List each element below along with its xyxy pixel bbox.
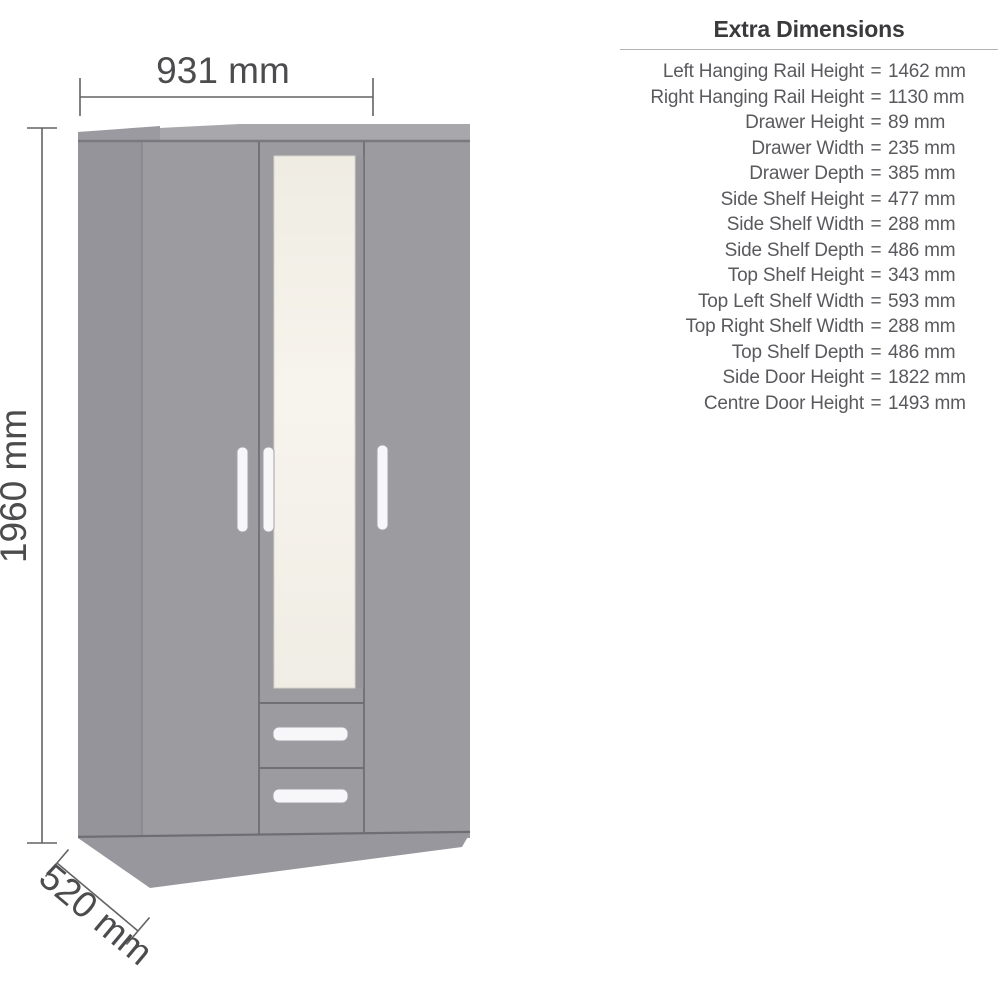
equals-sign: = — [864, 136, 888, 162]
dimension-value: 1493 mm — [888, 391, 998, 417]
dimension-label: Side Shelf Width — [620, 212, 864, 238]
dimension-value: 486 mm — [888, 340, 998, 366]
equals-sign: = — [864, 314, 888, 340]
equals-sign: = — [864, 212, 888, 238]
bottom-drawer-handle — [273, 789, 348, 803]
dimension-label: Top Shelf Height — [620, 263, 864, 289]
equals-sign: = — [864, 161, 888, 187]
dimension-value: 288 mm — [888, 212, 998, 238]
wardrobe-diagram: 931 mm 1960 mm 520 mm — [0, 0, 620, 1000]
dimension-label: Right Hanging Rail Height — [620, 85, 864, 111]
wardrobe-plinth — [78, 833, 470, 888]
width-dimension-label: 931 mm — [156, 50, 290, 91]
mirror — [274, 156, 355, 688]
dimension-row: Side Shelf Depth = 486 mm — [620, 238, 998, 264]
dimension-row: Top Left Shelf Width = 593 mm — [620, 289, 998, 315]
equals-sign: = — [864, 238, 888, 264]
equals-sign: = — [864, 365, 888, 391]
dimension-row: Drawer Width = 235 mm — [620, 136, 998, 162]
extra-dimensions-title: Extra Dimensions — [620, 16, 998, 43]
mirror-side-shadow — [355, 156, 364, 688]
wardrobe-illustration — [78, 124, 470, 888]
title-underline — [620, 49, 998, 50]
extra-dimensions-list: Left Hanging Rail Height = 1462 mm Right… — [620, 59, 998, 416]
dimension-label: Drawer Height — [620, 110, 864, 136]
equals-sign: = — [864, 187, 888, 213]
dimension-value: 1130 mm — [888, 85, 998, 111]
dimension-row: Centre Door Height = 1493 mm — [620, 391, 998, 417]
dimension-row: Top Right Shelf Width = 288 mm — [620, 314, 998, 340]
dimension-label: Side Shelf Depth — [620, 238, 864, 264]
dimension-row: Side Door Height = 1822 mm — [620, 365, 998, 391]
dimension-row: Top Shelf Height = 343 mm — [620, 263, 998, 289]
dimension-row: Side Shelf Width = 288 mm — [620, 212, 998, 238]
dimension-row: Left Hanging Rail Height = 1462 mm — [620, 59, 998, 85]
right-door-handle — [377, 445, 388, 530]
centre-door-handle — [263, 447, 274, 532]
top-drawer-handle — [273, 727, 348, 741]
dimension-value: 1462 mm — [888, 59, 998, 85]
equals-sign: = — [864, 110, 888, 136]
page: 931 mm 1960 mm 520 mm Extra Dimensions L… — [0, 0, 1000, 1000]
equals-sign: = — [864, 85, 888, 111]
dimension-row: Top Shelf Depth = 486 mm — [620, 340, 998, 366]
height-dimension-label: 1960 mm — [0, 409, 34, 563]
dimension-row: Drawer Depth = 385 mm — [620, 161, 998, 187]
equals-sign: = — [864, 391, 888, 417]
dimension-label: Centre Door Height — [620, 391, 864, 417]
equals-sign: = — [864, 263, 888, 289]
left-door-handle — [237, 447, 248, 532]
dimension-label: Top Left Shelf Width — [620, 289, 864, 315]
dimension-row: Right Hanging Rail Height = 1130 mm — [620, 85, 998, 111]
dimension-value: 477 mm — [888, 187, 998, 213]
dimension-label: Left Hanging Rail Height — [620, 59, 864, 85]
dimension-row: Side Shelf Height = 477 mm — [620, 187, 998, 213]
dimension-label: Side Shelf Height — [620, 187, 864, 213]
equals-sign: = — [864, 340, 888, 366]
dimension-value: 235 mm — [888, 136, 998, 162]
wardrobe-left-side-panel — [78, 141, 142, 838]
dimension-label: Drawer Depth — [620, 161, 864, 187]
dimension-label: Drawer Width — [620, 136, 864, 162]
equals-sign: = — [864, 59, 888, 85]
dimension-value: 343 mm — [888, 263, 998, 289]
dimension-value: 1822 mm — [888, 365, 998, 391]
equals-sign: = — [864, 289, 888, 315]
dimension-value: 385 mm — [888, 161, 998, 187]
dimension-value: 89 mm — [888, 110, 998, 136]
dimension-row: Drawer Height = 89 mm — [620, 110, 998, 136]
extra-dimensions-panel: Extra Dimensions Left Hanging Rail Heigh… — [620, 16, 998, 416]
dimension-label: Top Right Shelf Width — [620, 314, 864, 340]
dimension-value: 288 mm — [888, 314, 998, 340]
dimension-label: Side Door Height — [620, 365, 864, 391]
top-panel-left-bevel — [78, 126, 160, 141]
dimension-value: 486 mm — [888, 238, 998, 264]
dimension-label: Top Shelf Depth — [620, 340, 864, 366]
dimension-value: 593 mm — [888, 289, 998, 315]
